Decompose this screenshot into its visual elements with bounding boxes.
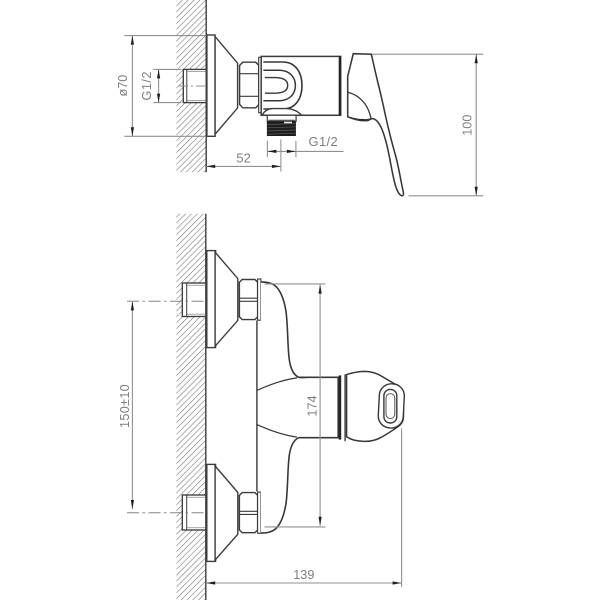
svg-text:G1/2: G1/2 — [309, 134, 339, 149]
svg-text:100: 100 — [460, 115, 474, 136]
svg-text:52: 52 — [236, 151, 250, 166]
svg-text:G1/2: G1/2 — [140, 71, 154, 101]
svg-text:174: 174 — [306, 395, 320, 416]
svg-text:150±10: 150±10 — [118, 384, 132, 428]
svg-text:ø70: ø70 — [116, 75, 130, 97]
svg-text:139: 139 — [293, 568, 314, 582]
